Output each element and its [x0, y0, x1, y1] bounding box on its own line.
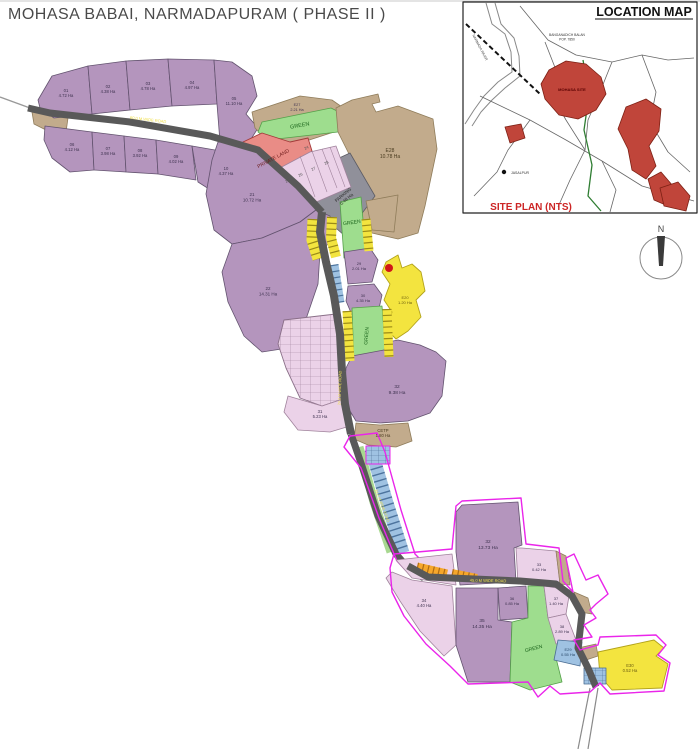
yellow-strip-low-left — [347, 311, 350, 361]
yellow-strip-east — [366, 219, 369, 251]
road-stub-a — [578, 688, 590, 749]
site-plan-page: MOHASA BABAI, NARMADAPURAM ( PHASE II ) … — [0, 0, 700, 749]
offsite-road-west — [0, 97, 30, 108]
road-bottom-label: 45.0 M WIDE ROAD — [470, 578, 507, 584]
compass-n-label: N — [658, 224, 665, 234]
plot-34 — [386, 572, 456, 656]
lm-title: LOCATION MAP — [596, 5, 692, 19]
site-plan-map: 014.72 Ha024.38 Ha034.78 Ha044.97 Ha0511… — [0, 0, 700, 749]
compass-needle — [657, 236, 665, 266]
pink-plot-grid-mid — [278, 314, 340, 406]
lm-mohasa-site-label: MOHASA SITE — [558, 87, 586, 92]
lm-town-dot — [502, 170, 506, 174]
red-marker-dot — [385, 264, 393, 272]
lm-jasalpur-label: JASALPUR — [511, 171, 530, 175]
road-stub-b — [588, 688, 598, 749]
yellow-strip-right-upper — [331, 217, 336, 257]
yellow-strip-low-right — [387, 309, 389, 357]
lm-caption: SITE PLAN (NTS) — [490, 202, 572, 213]
